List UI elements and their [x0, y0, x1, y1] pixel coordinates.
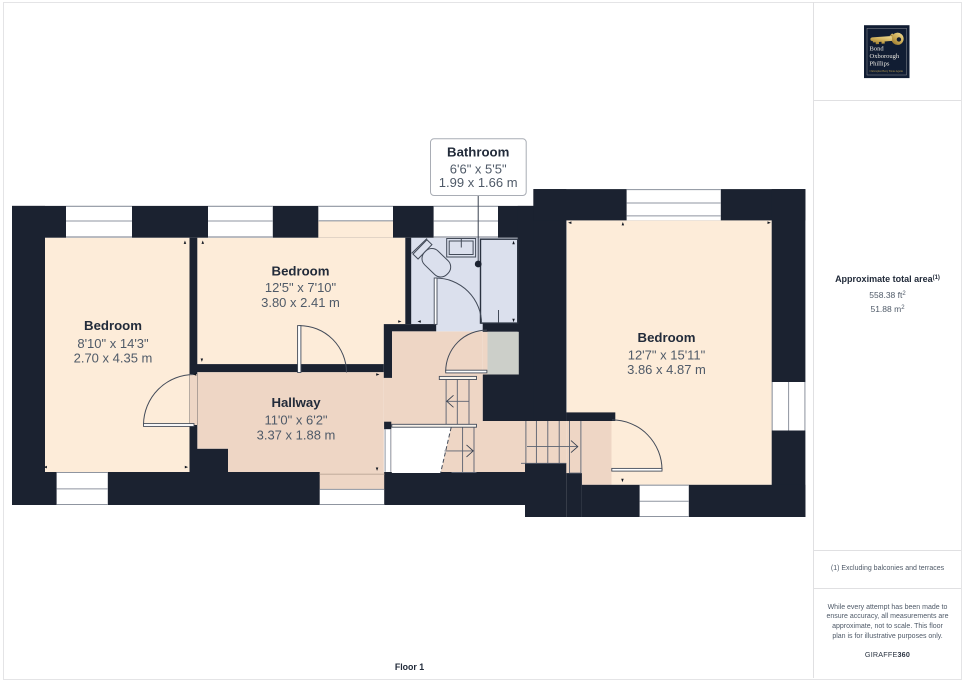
svg-text:2.70 x 4.35 m: 2.70 x 4.35 m — [74, 351, 153, 366]
svg-text:12'7" x 15'11": 12'7" x 15'11" — [628, 347, 706, 362]
svg-text:Bedroom: Bedroom — [84, 318, 142, 333]
svg-text:Floor 1: Floor 1 — [395, 662, 424, 672]
svg-text:3.86 x 4.87 m: 3.86 x 4.87 m — [627, 362, 706, 377]
svg-text:Hallway: Hallway — [271, 395, 321, 410]
svg-text:Christopher Berry Estate Agent: Christopher Berry Estate Agents — [870, 70, 904, 73]
svg-text:Bathroom: Bathroom — [447, 145, 509, 160]
svg-text:Bedroom: Bedroom — [638, 330, 696, 345]
svg-text:Bedroom: Bedroom — [272, 263, 330, 278]
svg-text:3.80 x 2.41 m: 3.80 x 2.41 m — [261, 295, 340, 310]
svg-text:6'6" x 5'5": 6'6" x 5'5" — [450, 161, 507, 176]
svg-text:8'10" x 14'3": 8'10" x 14'3" — [77, 336, 149, 351]
svg-text:1.99 x 1.66 m: 1.99 x 1.66 m — [439, 175, 518, 190]
svg-text:Bond: Bond — [870, 46, 885, 53]
svg-text:Phillips: Phillips — [870, 61, 890, 68]
svg-text:Oxborough: Oxborough — [870, 53, 900, 60]
svg-text:3.37 x 1.88 m: 3.37 x 1.88 m — [257, 427, 336, 442]
svg-text:12'5" x 7'10": 12'5" x 7'10" — [265, 280, 337, 295]
svg-text:11'0" x 6'2": 11'0" x 6'2" — [264, 413, 327, 428]
